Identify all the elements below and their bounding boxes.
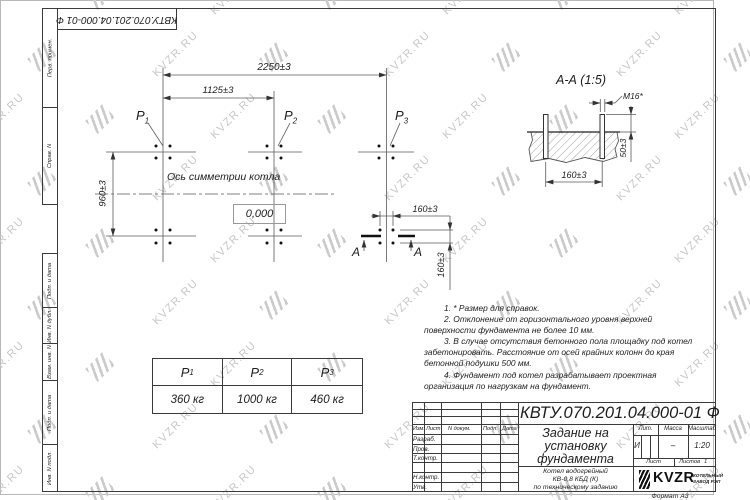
level-mark-value: 0,000 xyxy=(233,208,286,220)
tb-col-izm: Изм. xyxy=(413,426,425,432)
p1-load-label: P1 xyxy=(136,108,149,126)
section-title: А-А (1:5) xyxy=(556,73,606,87)
margin-label: Перв. примен. xyxy=(47,39,53,78)
margin-cell-inv-podl: Инв. N подл. xyxy=(42,444,58,492)
dim-160-h-label: 160±3 xyxy=(402,204,448,214)
tb-line xyxy=(412,462,518,463)
tb-col-podp: Подп. xyxy=(483,426,498,432)
section-label-a-left: А xyxy=(352,245,360,259)
margin-label: Подп. и дата xyxy=(47,262,53,298)
listov-value: 1 xyxy=(704,459,707,465)
tb-row-tkontr: Т.контр. xyxy=(413,455,438,462)
margin-cell-perv-primen: Перв. примен. xyxy=(42,8,58,108)
load-table-value: 360 кг xyxy=(153,386,223,413)
notes-block: 1. * Размер для справок. 2. Отклонение о… xyxy=(424,303,702,392)
tb-line xyxy=(412,472,518,473)
tb-col-ndokum: N докум. xyxy=(448,426,471,432)
format-label: Формат А3 xyxy=(610,493,730,500)
tb-line xyxy=(518,466,716,467)
load-table-value: 460 кг xyxy=(292,386,362,413)
tb-col-list: Лист xyxy=(426,426,440,432)
drawing-subtitle-line: Котел водогрейный xyxy=(518,468,633,475)
dim-2250-label: 2250±3 xyxy=(214,62,334,73)
p3-load-label: P3 xyxy=(395,108,408,126)
tb-line xyxy=(412,424,716,425)
tb-row-razrab: Разраб. xyxy=(413,436,435,443)
corner-stamp-box: КВТУ.070.201.04.000-01 Ф xyxy=(57,8,177,30)
axis-of-symmetry-label: Ось симметрии котла xyxy=(167,171,280,183)
tb-row-utv: Утв. xyxy=(413,484,427,491)
load-table-header: P1 xyxy=(153,359,223,386)
bolt-size-label: М16* xyxy=(623,91,643,101)
corner-stamp: КВТУ.070.201.04.000-01 Ф xyxy=(56,14,177,25)
tb-line xyxy=(633,435,716,436)
massa-value: – xyxy=(658,441,688,450)
p2-load-label: P2 xyxy=(284,108,297,126)
tb-col-data: Дата xyxy=(502,426,517,432)
listov-label: Листов xyxy=(679,459,700,465)
margin-cell-podp-data-1: Подп. и дата xyxy=(42,253,58,308)
load-table-value: 1000 кг xyxy=(223,386,293,413)
lit-value: И xyxy=(633,441,641,450)
tb-row-prov: Пров. xyxy=(413,446,429,453)
drawing-title-line: установку xyxy=(518,439,633,453)
dim-1125-label: 1125±3 xyxy=(188,85,248,96)
tb-line xyxy=(650,435,651,458)
note-2: 2. Отклонение от горизонтального уровня … xyxy=(424,314,702,336)
load-table-header: P2 xyxy=(223,359,293,386)
massa-label: Масса xyxy=(658,426,688,432)
tb-line xyxy=(412,409,518,410)
note-1: 1. * Размер для справок. xyxy=(424,303,702,314)
tb-line xyxy=(412,416,518,417)
masshtab-value: 1:20 xyxy=(688,441,716,450)
tb-row-nkontr: Н.контр. xyxy=(413,474,439,481)
margin-label: Подп. и дата xyxy=(47,394,53,430)
drawing-sheet: KVZR.RUKVZR.RUKVZR.RUKVZR.RUKVZR.RUKVZR.… xyxy=(0,0,750,500)
kvzr-logo-sub2: ЗАВОД РЭП xyxy=(693,479,720,484)
tb-line xyxy=(641,435,642,458)
tb-line xyxy=(412,482,518,483)
margin-cell-sprav-n: Справ. N xyxy=(42,107,58,205)
doc-number: КВТУ.070.201.04.000-01 Ф xyxy=(520,404,716,423)
margin-cell-podp-data-2: Подп. и дата xyxy=(42,380,58,445)
load-table-header: P3 xyxy=(292,359,362,386)
kvzr-logo-text: KVZR xyxy=(653,470,694,486)
margin-cell-vzam-inv: Взам. инв. N xyxy=(42,343,58,381)
margin-label: Инв. N подл. xyxy=(47,451,53,485)
drawing-title-line: фундамента xyxy=(518,452,633,466)
margin-cell-inv-dubl: Инв. N дубл. xyxy=(42,307,58,344)
drawing-subtitle-line: по техническому заданию xyxy=(518,484,633,491)
lit-label: Лит. xyxy=(633,426,658,432)
dim-160-section-label: 160±3 xyxy=(551,170,597,180)
kvzr-logo-icon xyxy=(639,470,650,489)
drawing-title-line: Задание на xyxy=(518,426,633,440)
masshtab-label: Масштаб xyxy=(687,426,717,432)
note-3: 3. В случае отсутствия бетонного пола пл… xyxy=(424,336,702,369)
kvzr-logo-sub1: КОТЕЛЬНЫЙ xyxy=(693,473,723,478)
note-4: 4. Фундамент под котел разрабатывает про… xyxy=(424,370,702,392)
margin-label: Инв. N дубл. xyxy=(47,309,53,343)
dim-160-v-label: 160±3 xyxy=(436,242,446,288)
section-label-a-right: А xyxy=(414,245,422,259)
tb-line xyxy=(412,434,518,435)
tb-line xyxy=(412,402,716,403)
load-table: P1 P2 P3 360 кг 1000 кг 460 кг xyxy=(152,358,363,414)
dim-960-label: 960±3 xyxy=(98,169,109,219)
margin-label: Справ. N xyxy=(47,144,53,168)
tb-line xyxy=(674,458,675,466)
dim-50-label: 50±3 xyxy=(618,125,628,171)
margin-label: Взам. инв. N xyxy=(47,345,53,379)
list-label: Лист xyxy=(633,459,674,465)
drawing-subtitle-line: КВ-0,8 КБД (К) xyxy=(518,476,633,483)
